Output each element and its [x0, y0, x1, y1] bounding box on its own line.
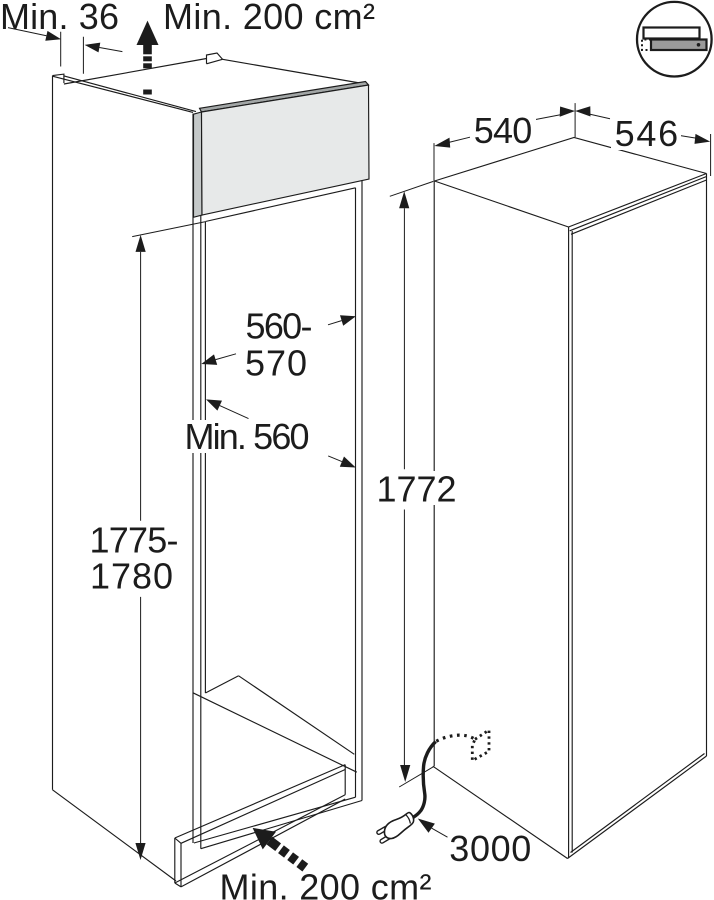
svg-text:Min. 560: Min. 560	[185, 416, 310, 457]
svg-text:Min. 200 cm²: Min. 200 cm²	[163, 0, 375, 37]
svg-text:540: 540	[474, 110, 533, 151]
svg-text:1772: 1772	[377, 469, 457, 510]
svg-text:Min. 36: Min. 36	[0, 0, 119, 37]
svg-text:546: 546	[615, 113, 679, 154]
svg-text:1780: 1780	[90, 555, 173, 596]
svg-text:Min. 200 cm²: Min. 200 cm²	[220, 867, 432, 900]
svg-text:3000: 3000	[449, 828, 531, 869]
svg-text:560-: 560-	[246, 305, 313, 346]
svg-text:570: 570	[245, 342, 307, 383]
